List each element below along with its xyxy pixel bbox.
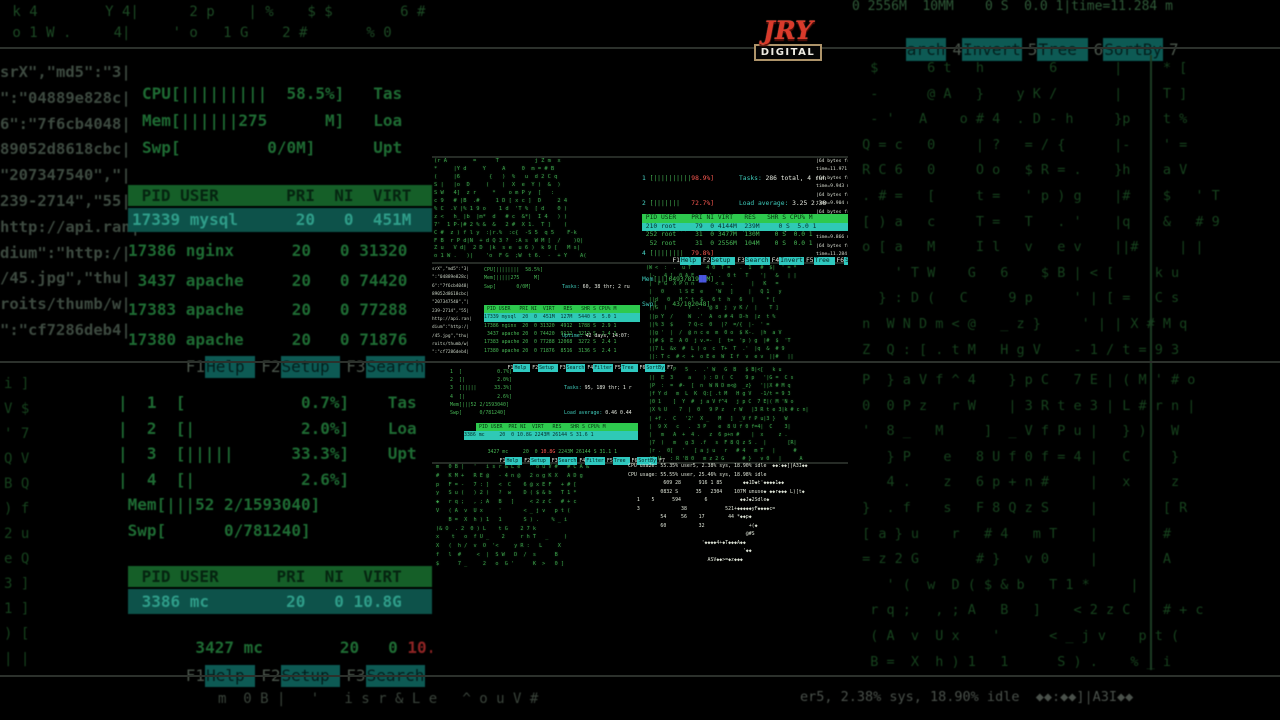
htop-panel-middle: CPU[|||||||| 58.5%] Mem[|||||275 M] Swp[… (484, 266, 640, 363)
stat-label: Tasks: (562, 284, 583, 290)
cpu-meter-1: 1 [||||||||||98.9%] (642, 175, 714, 183)
fkey-label: Search (366, 356, 426, 378)
process-table-header: PID USER PRI NI VIRT RES SHR S CPU% M (484, 305, 640, 313)
fkey-label: Help (505, 457, 522, 465)
fkey-number: F2 (261, 357, 280, 376)
tasks-line: Tasks: 95, 189 thr; 1 r (564, 384, 632, 392)
fkey-number: F4 (772, 257, 780, 264)
swp-label: Swp (642, 301, 653, 308)
matrix-cpu-left: m 0 B | ' i s r & L e ^ o u V # # C A & … (436, 463, 589, 569)
fkey-number: F3 (346, 357, 365, 376)
fkey-label: Tree (613, 457, 630, 465)
meter-value: 72.7%] (691, 200, 714, 207)
cpu-mem-swp-meters: CPU[|||||||| 58.5%] Mem[|||||275 M] Swp[… (484, 266, 543, 291)
video-frame: k 4 Y 4| 2 p | % $ $ 6 # ] o 1 W . 4| ' … (0, 0, 1280, 720)
json-fragments-column: srX","md5":"3| ":"04889e828c| 6":"7f6cb4… (432, 266, 472, 358)
matrix-top-left: (r A = T j Z m x * |Y d Y A 0 m = # B ( … (434, 158, 587, 261)
stat-value: 0.46 0.44 (605, 410, 632, 416)
process-table-header: PID USER PRI NI VIRT RES SHR S CPU% M (476, 423, 638, 431)
fkey-label: Help (680, 257, 701, 265)
tasks-line: Tasks: 60, 38 thr; 2 ru (562, 283, 630, 291)
meter-number: 1 (642, 175, 650, 182)
selected-process-row: 17339 mysql 20 0 451M 127M 5440 S 5.0 1 (484, 313, 640, 321)
fkey-label: Setup (530, 457, 550, 465)
bg-side-chars: i ] V $ ' 7 Q V B Q ) f 2 u e Q 3 ] 1 ] … (4, 372, 29, 672)
fkey-number: F5 (806, 257, 814, 264)
fkey-label: SortBy (645, 364, 665, 372)
stat-label: Tasks: (564, 385, 585, 391)
fkey-label: Setup (711, 257, 736, 265)
stat-label: Load average: (739, 200, 792, 207)
stat-value: 3.25 2.38 (792, 200, 826, 207)
htop-panel-top: 1 [||||||||||98.9%] 2 [||||||| 72.7%] 3 … (642, 158, 848, 262)
meter-number: 2 (642, 200, 650, 207)
bg-htop-meters: CPU[||||||||| 58.5%] Tas Mem[||||||275 M… (142, 80, 402, 161)
tasks-line: Tasks: 286 total, 4 run (739, 175, 826, 183)
bg-json-fragments: srX","md5":"3| ":"04889e828c| 6":"7f6cb4… (0, 60, 140, 344)
load-line: Load average: 3.25 2.38 (739, 200, 826, 208)
fkey-bar-top-htop: F1Help F2Setup F3SearchF4InvertF5Tree F6… (642, 249, 848, 274)
video-area: JRY DIGITAL (r A = T j Z m x * |Y d Y A … (432, 0, 848, 720)
stat-label: Tasks: (739, 175, 766, 182)
stat-label: Load average: (564, 410, 605, 416)
bg-process-header: PID USER PRI NI VIRT (128, 185, 432, 206)
bg-selected2-row: 3386 mc 20 0 10.8G (128, 589, 432, 614)
background-left: k 4 Y 4| 2 p | % $ $ 6 # ] o 1 W . 4| ' … (0, 0, 432, 720)
process-table-header: PID USER PRI NI VIRT RES SHR S CPU% M (642, 214, 848, 223)
stat-value: 286 total, 4 run (766, 175, 827, 182)
fkey-label: SortBy (844, 257, 848, 265)
meter-bar: [||||||| (650, 200, 692, 207)
mem-bar: [|||6493/819 (653, 276, 699, 283)
bg-bottom-cpu-line: er5, 2.38% sys, 18.90% idle ◆◆:◆◆]|A3I◆◆ (800, 689, 1133, 705)
background-right: 0 2556M 10MM 0 S 0.0 1|time=11.284 m arc… (848, 0, 1280, 720)
selected-process-row: 210 root 79 0 4144M 239M 0 S 5.0 1 (642, 223, 848, 231)
bg-selected-row: 17339 mysql 20 0 451M (128, 208, 432, 232)
htop-panel-bottom: 1 [ 0.7%] 2 [| 2.0%] 3 [||||| 33.3%] 4 [… (450, 368, 642, 460)
bg-matrix-right-upper: $ 6 t h 6 | * [ - @ A } y K / | T ] - ' … (854, 56, 1220, 363)
swp-meter: Swp[ 43/102048] (642, 301, 714, 309)
fkey-number: F1 (186, 357, 205, 376)
bg-process2-header: PID USER PRI NI VIRT (128, 566, 432, 587)
logo-title: JRY (754, 18, 822, 43)
logo-subtitle: DIGITAL (754, 44, 822, 61)
bg-htop2-meters: | 1 [ 0.7%] Tas | 2 [| 2.0%] Loa | 3 [||… (118, 390, 417, 543)
fkey-number: F3 (737, 257, 745, 264)
stat-value: 95, 189 thr; 1 r (585, 385, 632, 391)
channel-logo: JRY DIGITAL (754, 18, 822, 61)
fkey-label: Search (745, 257, 770, 265)
cpu-meter-2: 2 [||||||| 72.7%] (642, 200, 714, 208)
fkey-number: F6 (837, 257, 845, 264)
cpu-usage-block: CPU usa2e: 55.35% user5, 2.38% sys, 18.9… (628, 462, 808, 565)
fkey-label: Help (205, 356, 255, 378)
fkey-label: Invert (779, 257, 804, 265)
stat-value: 60, 38 thr; 2 ru (583, 284, 630, 290)
fkey-label: Tree (814, 257, 835, 265)
mem-label: Mem (642, 276, 653, 283)
fkey-label: Setup (281, 356, 341, 378)
mem-end: M] (706, 276, 714, 283)
process-rows: 252 root 31 0 3477M 130M 0 S 0.0 1 52 ro… (642, 231, 813, 248)
meter-bar: [|||||||||| (650, 175, 692, 182)
bg-matrix-top: k 4 Y 4| 2 p | % $ $ 6 # ] o 1 W . 4| ' … (4, 2, 432, 44)
fkey-number: F1 (672, 257, 680, 264)
fkey-label: Search (558, 457, 578, 465)
matrix-bottom-right: (r 2 . P 5 . .' W G B $ B|<[ k u || E 3 … (646, 366, 809, 463)
mem-meter: Mem[|||6493/819██M] (642, 276, 714, 284)
bg-process-fragment: 0 2556M 10MM 0 S 0.0 1|time=11.284 m (852, 0, 1173, 14)
cpu-mem-swp-meters: 1 [ 0.7%] 2 [| 2.0%] 3 [||||| 33.3%] 4 [… (450, 368, 512, 417)
fkey-label: Filter (585, 457, 605, 465)
fkey-number: F7 (667, 365, 673, 371)
fkey-number: F2 (703, 257, 711, 264)
load-line: Load average: 0.46 0.44 (564, 409, 632, 417)
swp-bar: [ 43/102048] (653, 301, 710, 308)
process-rows: 17386 nginx 20 0 31320 4912 1788 S 2.9 1… (484, 322, 617, 355)
meter-value: 98.9%] (691, 175, 714, 182)
selected-process-row: 3386 mc 20 0 10.8G 2243M 26144 S 31.6 1 (464, 431, 638, 439)
